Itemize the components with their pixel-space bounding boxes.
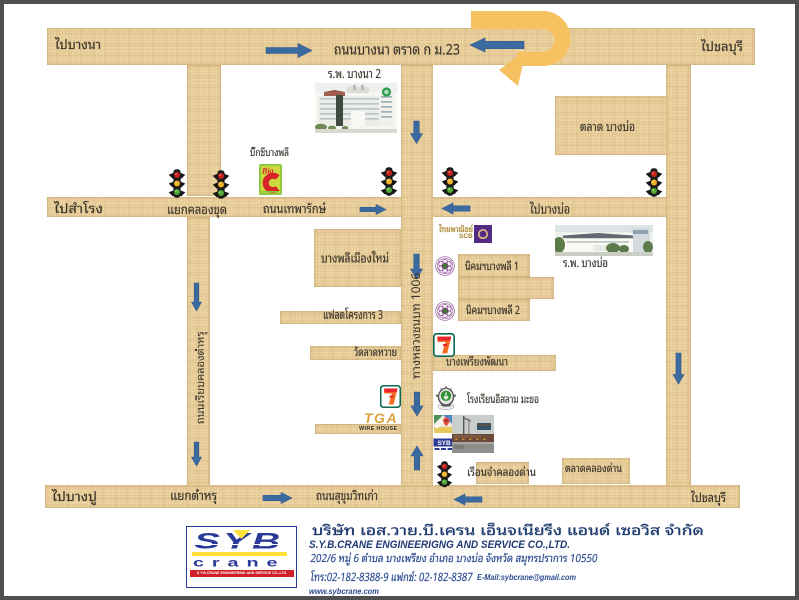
svg-text:SYB: SYB: [437, 440, 451, 447]
